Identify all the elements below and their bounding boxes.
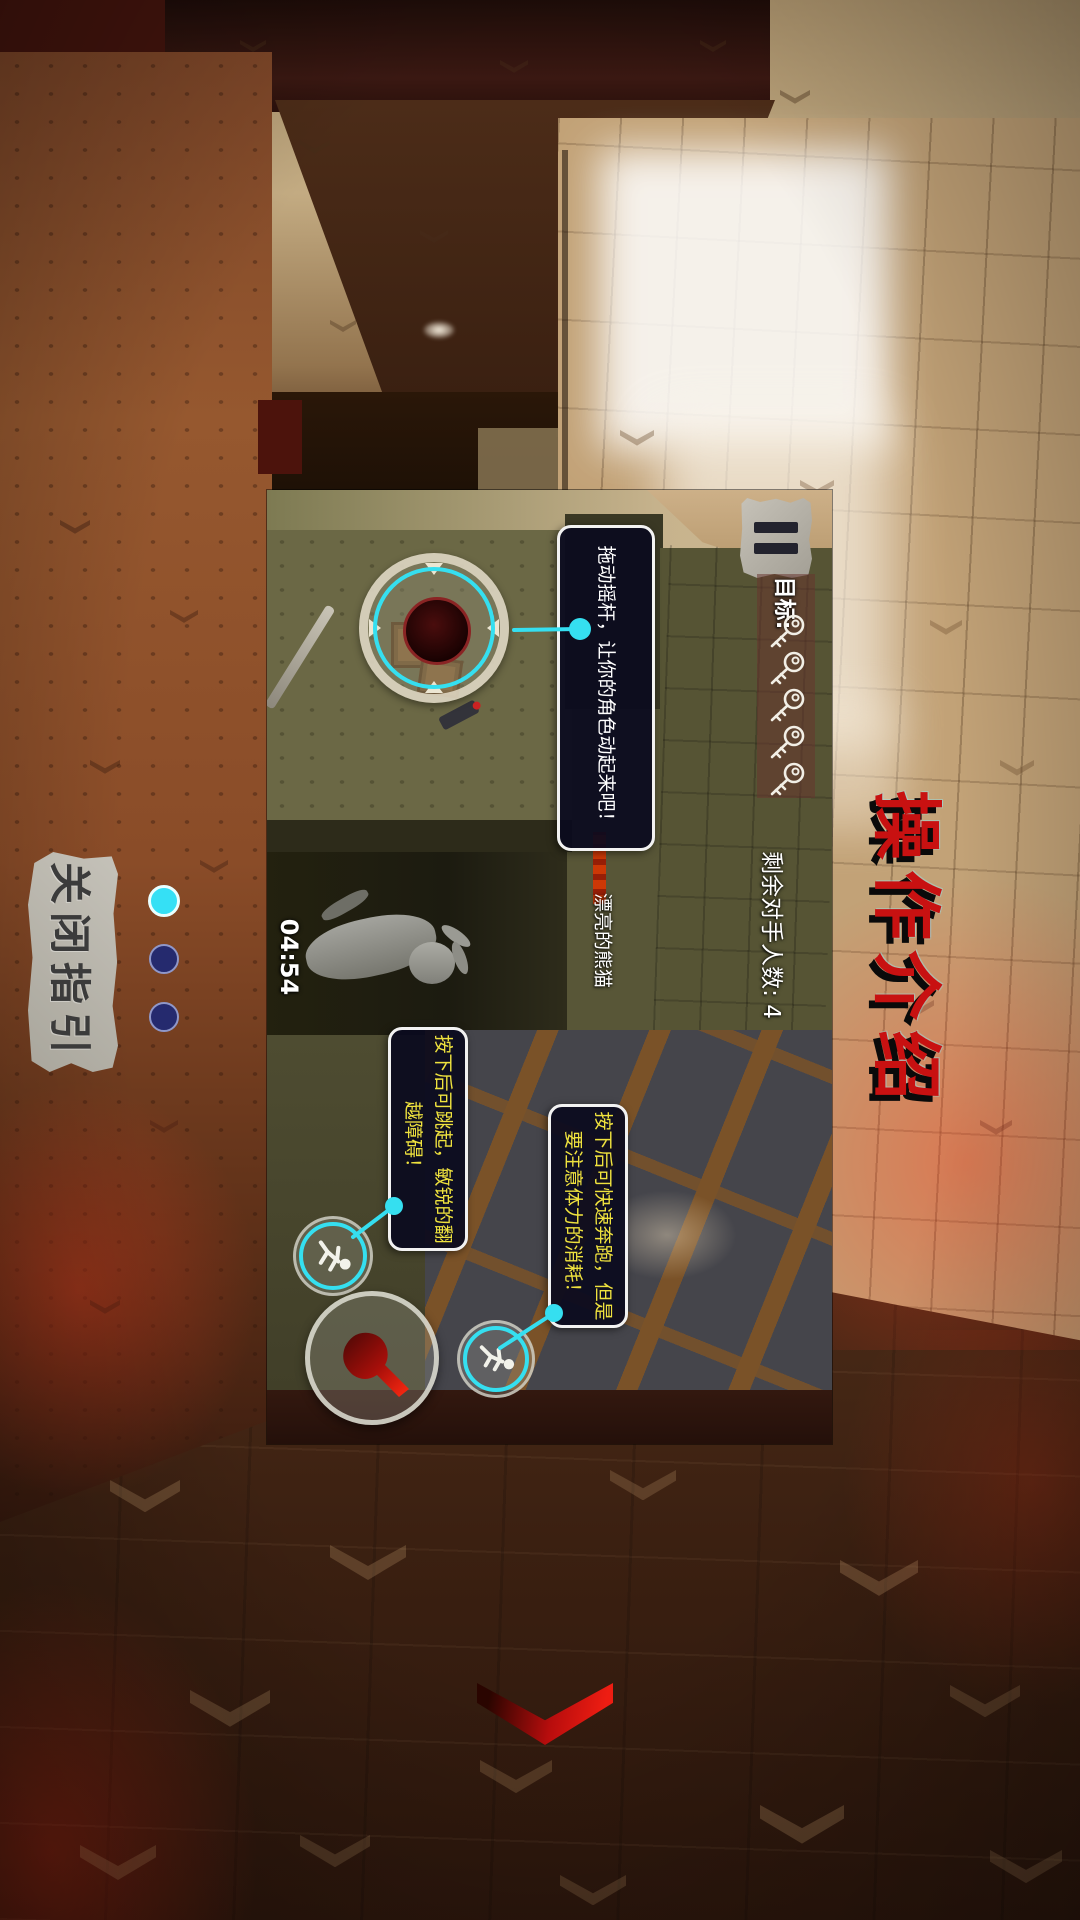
pagination-dot-inactive[interactable] bbox=[149, 944, 179, 974]
red-light-glow bbox=[840, 1330, 1080, 1710]
close-guide-label: 关闭指引 bbox=[43, 862, 104, 1062]
page-title-text: 操作介绍 bbox=[862, 790, 963, 1110]
pagination-dot-active[interactable] bbox=[148, 885, 180, 917]
pagination-dot-inactive[interactable] bbox=[149, 1002, 179, 1032]
game-screen: 目标: bbox=[0, 0, 1080, 1920]
ceiling-lamp bbox=[424, 322, 454, 338]
tooltip-connectors bbox=[267, 490, 832, 1444]
ceiling-beam-left bbox=[0, 0, 165, 58]
window-glow bbox=[600, 150, 890, 450]
page-title: 操作介绍 bbox=[862, 780, 962, 1120]
wall-corner-line bbox=[562, 150, 568, 500]
wall-vent bbox=[258, 400, 302, 474]
tutorial-screenshot-panel: 目标: bbox=[267, 490, 832, 1444]
pagination-dots bbox=[151, 888, 177, 1038]
red-light-glow bbox=[0, 1080, 260, 1500]
close-guide-button[interactable]: 关闭指引 bbox=[28, 852, 118, 1072]
corridor-end-door bbox=[478, 428, 566, 490]
